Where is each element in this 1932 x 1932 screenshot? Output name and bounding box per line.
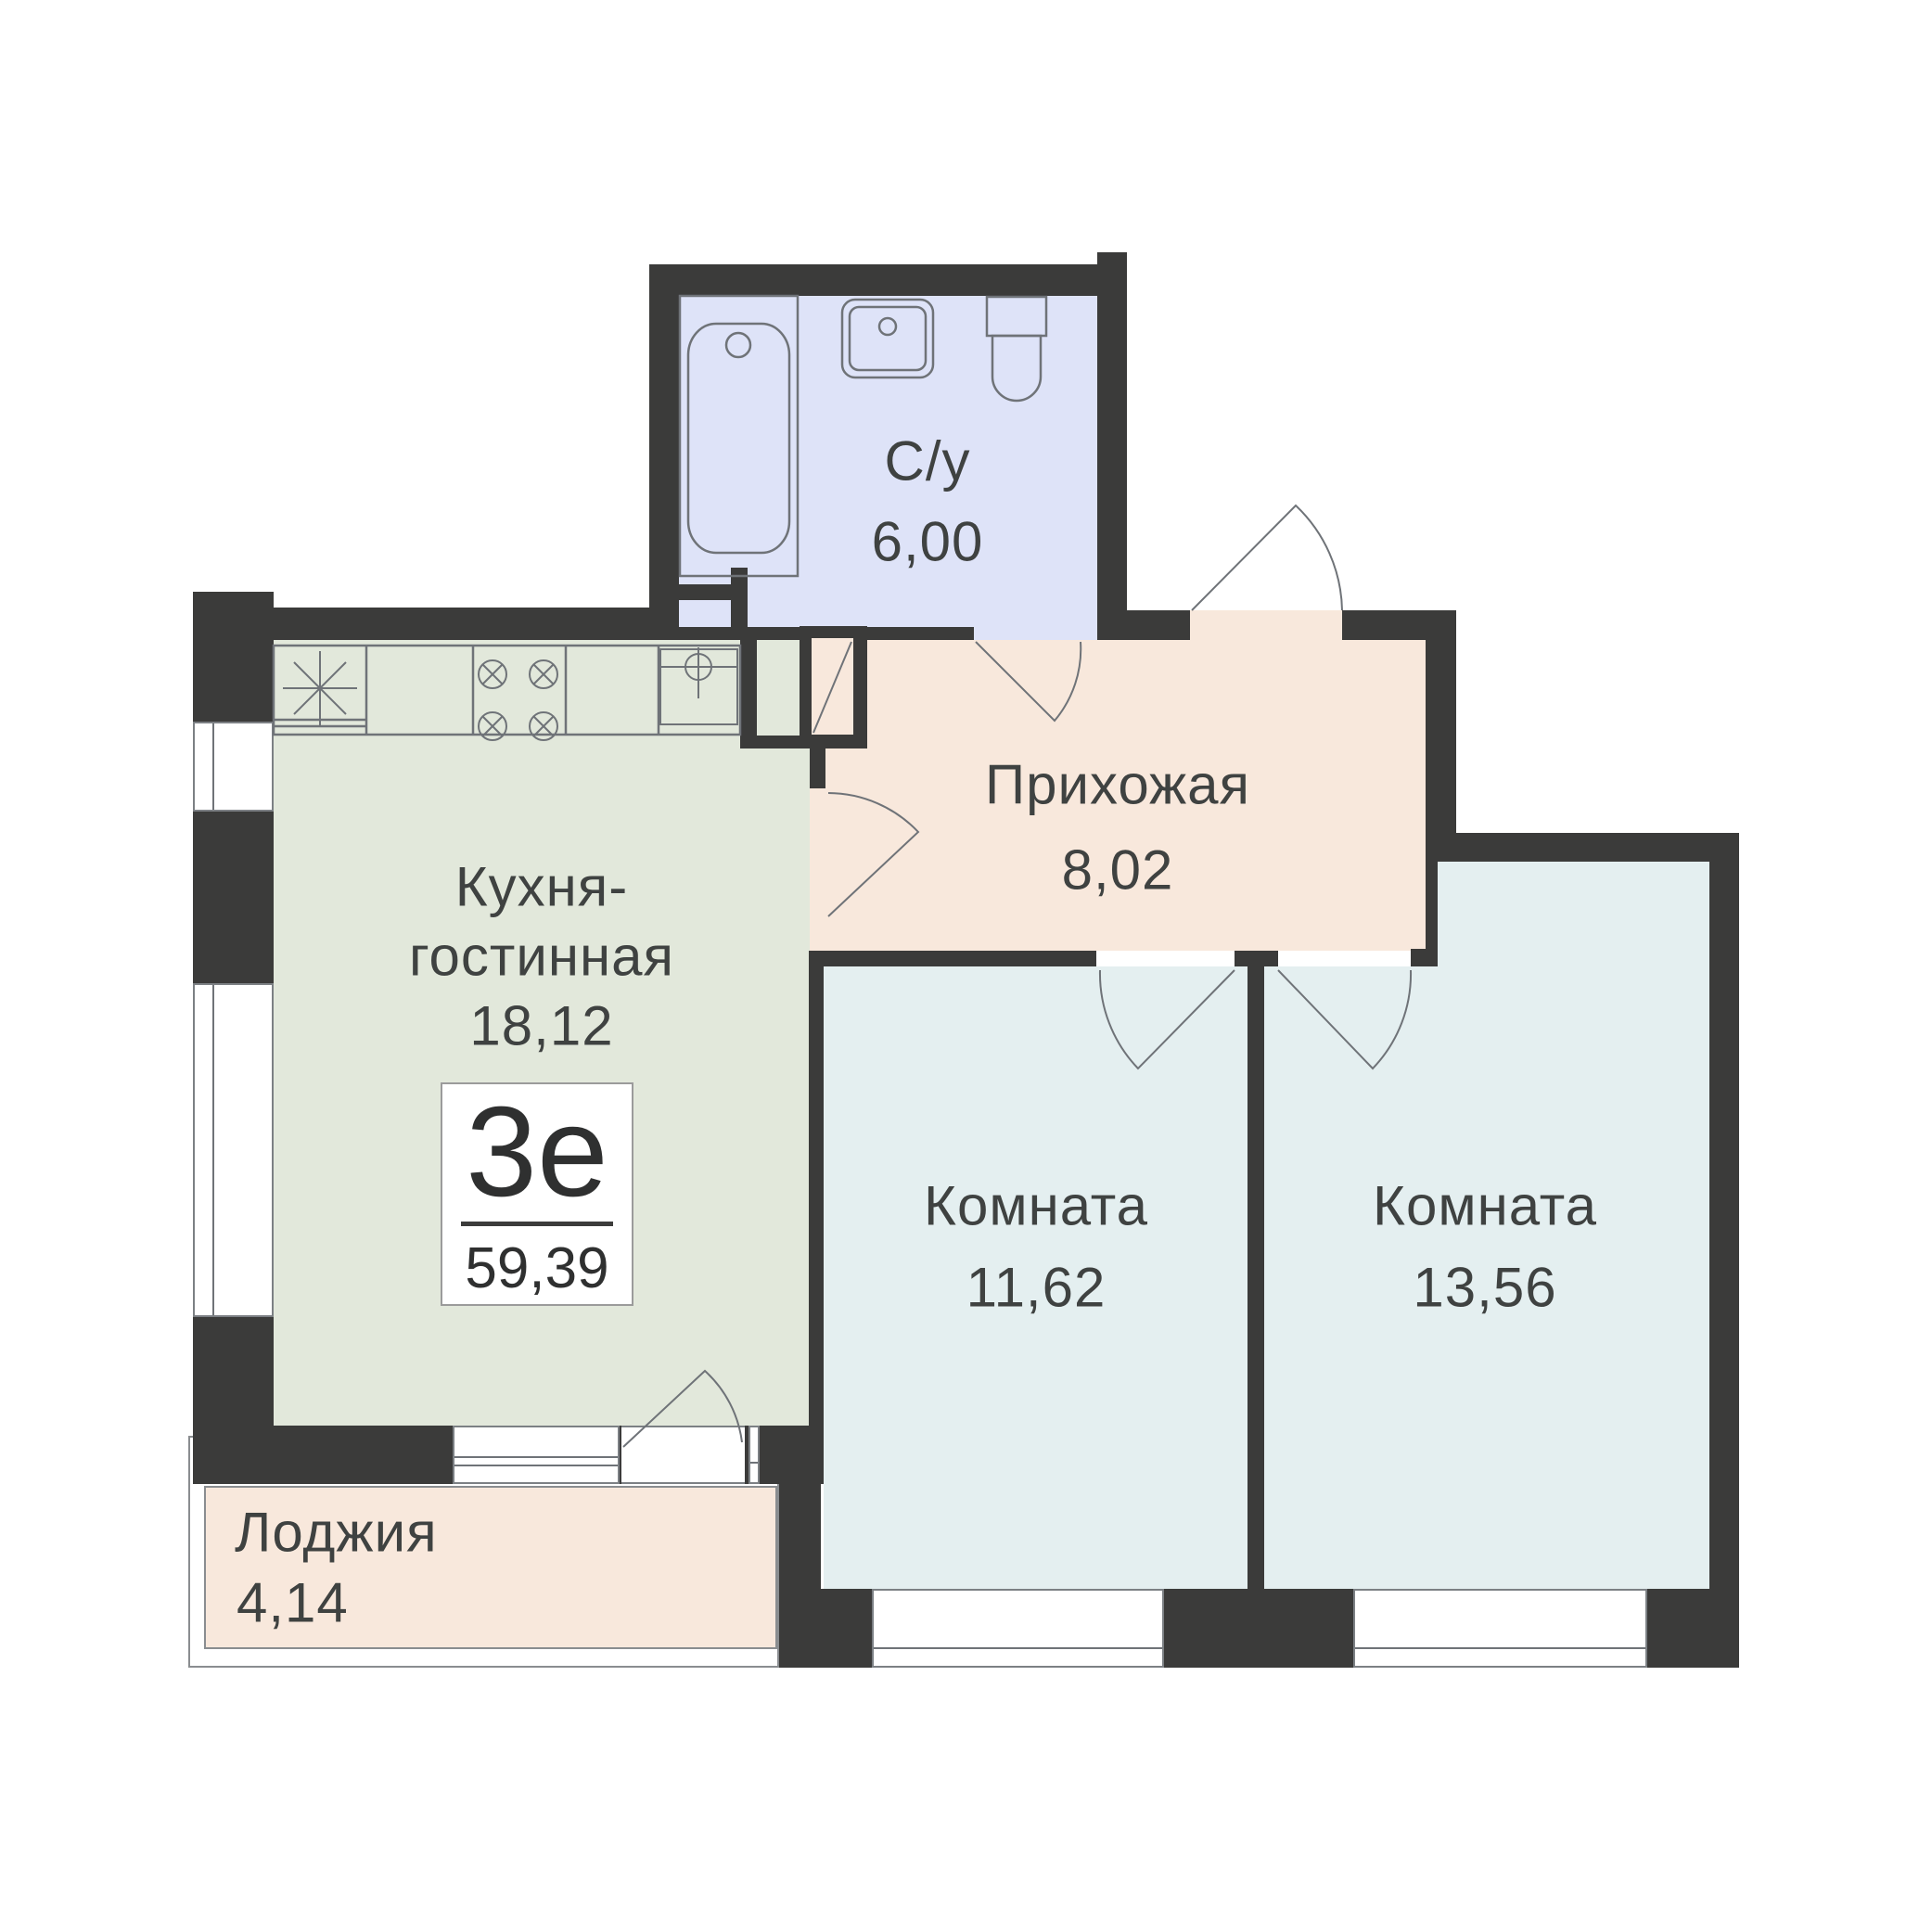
floor-plan: С/у 6,00 Прихожая 8,02 Кухня- гостинная … [0,0,1932,1932]
wall-hall-step [1411,949,1438,966]
floor-bathroom-doorway [974,627,1097,640]
apartment-type-badge: 3е 59,39 [441,1082,633,1306]
wall-kitchen-rooms [809,951,824,1484]
window-kitchen-loggia [453,1426,620,1484]
label-kitchen-line2: гостинная [409,925,674,989]
wall-loggia-pier [779,1484,821,1668]
label-kitchen-line1: Кухня- [455,855,629,919]
label-bathroom: С/у [885,429,971,493]
wall-hall-door-stub [810,748,825,788]
apartment-type: 3е [466,1088,608,1216]
wall-hall-right [1426,610,1456,833]
wall-kitchen-top [193,608,679,640]
wall-shaft-bottom [740,736,800,748]
area-loggia: 4,14 [237,1571,349,1635]
floor-bath-alcove [679,600,731,627]
wall-hall-top-left [1124,610,1190,640]
window-kitchen-left-lower [193,983,274,1317]
window-room1 [872,1589,1164,1668]
wall-bathroom-left [649,264,679,640]
floor-closet-niche [812,638,853,735]
area-kitchen: 18,12 [469,994,613,1058]
door-arc-entrance [1192,505,1342,610]
badge-divider [461,1222,613,1226]
wall-room2-top [1426,833,1739,862]
window-kitchen-slot [748,1426,760,1484]
label-hallway: Прихожая [985,753,1250,817]
area-hallway: 8,02 [1062,838,1174,902]
wall-rooms-top-b [1235,951,1278,966]
wall-rooms-top-a [809,951,1096,966]
apartment-total-area: 59,39 [465,1235,608,1301]
label-room1: Комната [924,1174,1148,1238]
wall-between-rooms [1247,966,1264,1589]
area-room1: 11,62 [966,1256,1107,1320]
label-room2: Комната [1373,1174,1597,1238]
window-kitchen-left-upper [193,722,274,812]
wall-bathroom-top [649,264,1127,296]
doorway-balcony [621,1426,745,1484]
floor-entrance-doorway [1190,610,1342,640]
area-room2: 13,56 [1413,1256,1556,1320]
area-bathroom: 6,00 [872,510,984,574]
wall-bathroom-right [1097,252,1127,640]
window-room2 [1353,1589,1647,1668]
floor-room2-upper [1438,862,1709,966]
wall-outer-right [1709,833,1739,1668]
wall-bath-alcove-partition [731,568,748,627]
wall-shaft-left [740,640,757,736]
label-loggia: Лоджия [235,1501,438,1565]
